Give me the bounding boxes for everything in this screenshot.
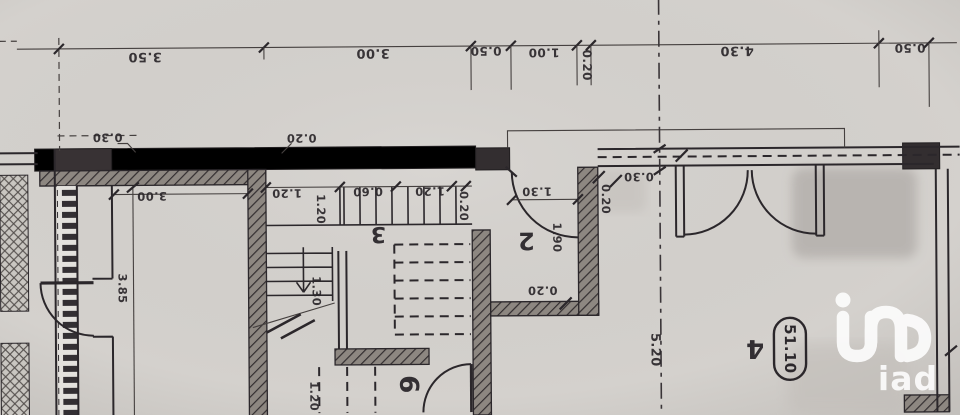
room-number-label: 6 <box>393 375 423 394</box>
dimension-label: 1.90 <box>550 222 564 252</box>
room-number-label: 4 <box>746 333 765 363</box>
dimension-label: 5.20 <box>647 333 662 367</box>
area-badge-value: 51.10 <box>781 324 799 374</box>
dimension-label: 1.20 <box>272 186 302 200</box>
dimension-label: 1.00 <box>528 45 559 59</box>
dimension-label: 3.50 <box>128 49 162 64</box>
dimension-label: 0.20 <box>457 191 471 221</box>
floor-plan-drawing: 51.10 3.503.000.501.000.204.300.500.300.… <box>0 0 960 415</box>
room-number-label: 2 <box>518 227 535 255</box>
dimension-label: 1.20 <box>307 381 321 411</box>
dimension-label: 3.00 <box>356 45 390 60</box>
dimension-label: 0.20 <box>286 131 316 145</box>
iad-logo-text: iad <box>878 359 938 398</box>
dimension-label: 0.20 <box>599 184 613 214</box>
dimension-label: 0.20 <box>528 283 558 297</box>
dimension-label: 1.20 <box>415 184 445 198</box>
dimension-label: 1.30 <box>522 184 552 198</box>
floor-plan-scan: 51.10 3.503.000.501.000.204.300.500.300.… <box>0 0 960 415</box>
dimension-label: 0.30 <box>624 170 654 184</box>
dimension-label: 3.00 <box>137 189 167 203</box>
room-number-label: 3 <box>370 221 386 246</box>
dimension-label: 3.85 <box>115 273 129 303</box>
dimension-label: 1.30 <box>309 276 323 306</box>
dimension-label: 0.60 <box>353 185 383 199</box>
dimension-label: 0.50 <box>470 44 501 58</box>
dimension-label: 0.20 <box>580 50 594 81</box>
dimension-label: 0.50 <box>894 41 925 55</box>
dimension-label: 0.30 <box>92 130 122 144</box>
dimension-label: 1.20 <box>314 194 328 224</box>
dimension-label: 4.30 <box>720 43 754 58</box>
crosshatch-party-wall <box>0 175 29 415</box>
